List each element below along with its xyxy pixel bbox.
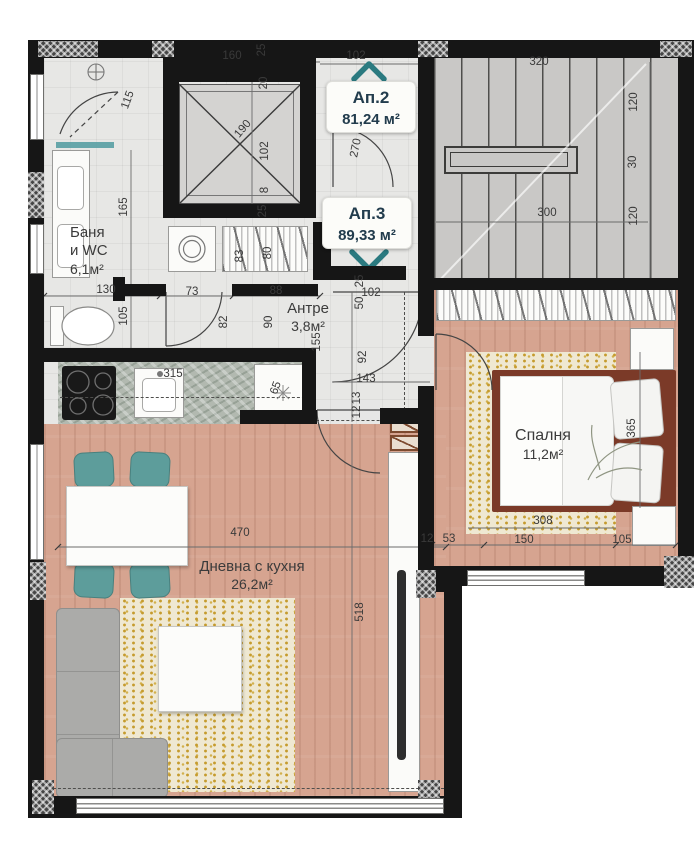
sofa-chaise <box>56 738 168 798</box>
living-label: Дневна с кухня 26,2м² <box>177 558 327 593</box>
column-hatch <box>30 562 46 600</box>
shower-screen <box>56 142 114 148</box>
pillow <box>610 378 665 440</box>
kitchen-sink-basin <box>142 378 176 412</box>
column-hatch <box>152 41 174 57</box>
wall-entry-living-b <box>380 408 420 424</box>
floor-plan: Ап.2 81,24 м² Ап.3 89,33 м² Баня и WC 6,… <box>0 0 700 850</box>
column-hatch <box>28 172 44 218</box>
wall-top <box>28 40 694 58</box>
wall-kitchen <box>44 348 316 362</box>
tv <box>397 570 406 760</box>
pillow <box>610 442 664 503</box>
staircase-rail-inner <box>450 152 568 167</box>
living-area: 26,2м² <box>177 576 327 593</box>
ap2-name: Ап.2 <box>327 88 415 108</box>
bedroom-name: Спалня <box>493 426 593 446</box>
coffee-table <box>158 626 242 712</box>
apartment-label-ap2: Ап.2 81,24 м² <box>326 81 416 133</box>
column-hatch <box>38 41 98 57</box>
sink-basin <box>57 166 84 210</box>
wall-elevator-bottom <box>163 204 316 218</box>
column-hatch <box>664 556 694 588</box>
bathroom-name-line1: Баня <box>70 224 160 242</box>
apartment-label-ap3: Ап.3 89,33 м² <box>322 197 412 249</box>
elevator-shaft-inner <box>186 91 294 196</box>
window-dashline <box>48 788 444 789</box>
window <box>30 224 44 274</box>
ap2-area: 81,24 м² <box>327 111 415 128</box>
column-hatch <box>418 41 448 57</box>
wall-bath-a <box>118 284 166 296</box>
entry-area: 3,8м² <box>268 318 348 335</box>
ap3-area: 89,33 м² <box>323 227 411 244</box>
wall-bedroom-left-bottom <box>418 386 434 576</box>
bedroom-wardrobe <box>436 287 676 321</box>
toilet-tank <box>50 306 64 346</box>
nightstand <box>630 328 674 370</box>
wall-entry-top <box>318 266 406 280</box>
column-hatch <box>32 780 54 814</box>
bathroom-area: 6,1м² <box>70 261 160 278</box>
wall-left <box>28 58 44 802</box>
bedroom-window <box>467 570 585 586</box>
wall-bedroom-top <box>418 278 694 290</box>
bedroom-area: 11,2м² <box>493 446 593 463</box>
entry-dashline <box>404 292 405 420</box>
upper-cabinet-dashline <box>60 397 310 398</box>
nightstand <box>632 506 676 546</box>
bedroom-label: Спалня 11,2м² <box>493 426 593 463</box>
shaft-box <box>390 435 420 451</box>
wall-living-right <box>444 588 462 818</box>
wall-elevator-right <box>300 58 316 210</box>
dining-chair <box>73 451 115 489</box>
dining-chair <box>129 561 171 599</box>
hall-closet <box>222 226 308 272</box>
living-name: Дневна с кухня <box>177 558 327 576</box>
dining-chair <box>129 451 171 489</box>
dining-chair <box>73 561 115 599</box>
wall-right <box>678 40 694 588</box>
ap3-name: Ап.3 <box>323 204 411 224</box>
washing-machine <box>168 226 216 272</box>
wall-bath-b <box>232 284 318 296</box>
wall-elevator-left <box>163 58 179 210</box>
column-hatch <box>416 570 436 598</box>
entry-name: Антре <box>268 300 348 318</box>
living-window <box>76 798 444 814</box>
column-hatch <box>660 41 692 57</box>
bathroom-name-line2: и WC <box>70 242 160 260</box>
cooktop <box>62 366 116 420</box>
entry-label: Антре 3,8м² <box>268 300 348 335</box>
wall-stair-separator <box>418 58 434 280</box>
wall-elevator-top <box>163 58 316 82</box>
wall-bedroom-left-top <box>418 280 434 336</box>
wall-entry-left <box>302 348 316 424</box>
window <box>30 74 44 140</box>
dining-table <box>66 486 188 566</box>
window <box>30 444 44 560</box>
bathroom-label: Баня и WC 6,1м² <box>70 224 160 278</box>
